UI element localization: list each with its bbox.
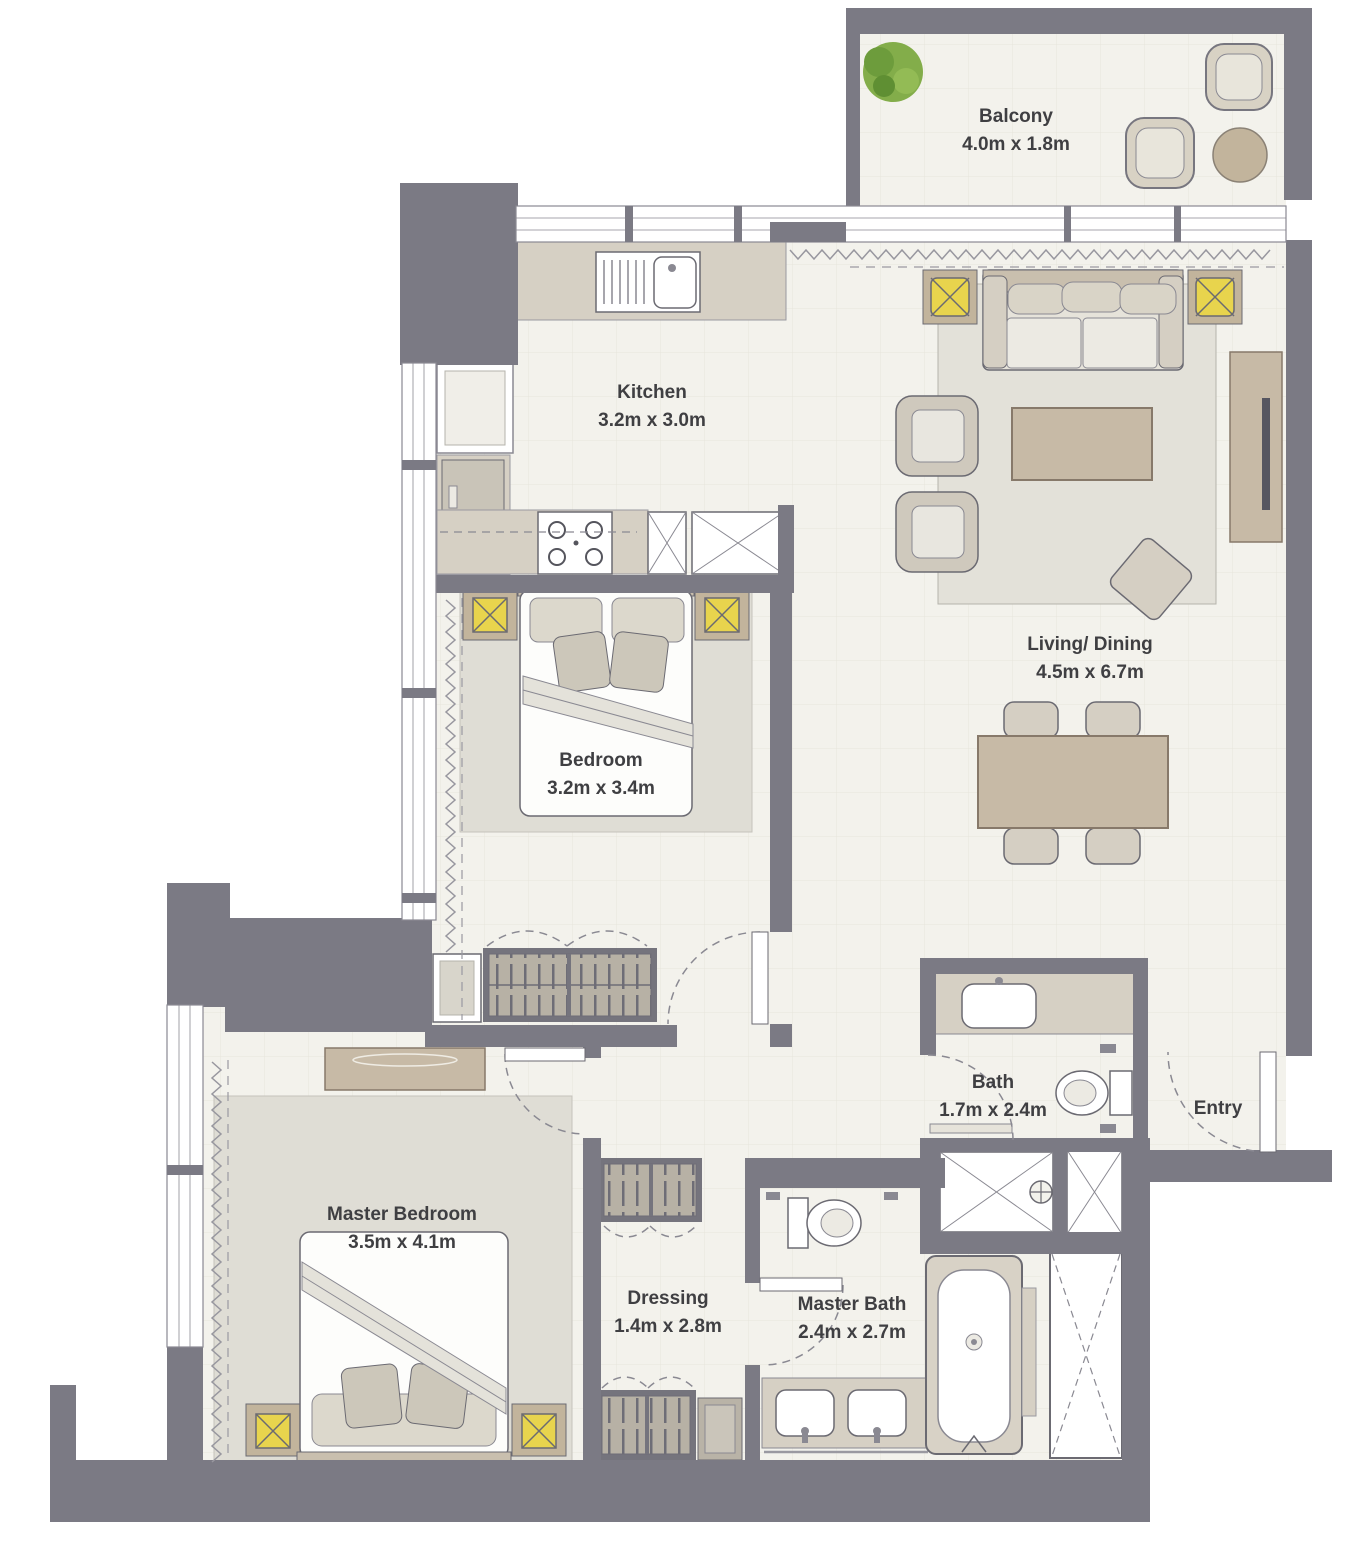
kitchen-cabinet-x	[648, 512, 686, 574]
master-toilet	[788, 1198, 861, 1248]
towel-bar	[930, 1124, 1012, 1133]
kitchen-dims: 3.2m x 3.0m	[598, 410, 706, 431]
planter-icon	[1188, 270, 1242, 324]
master-bedroom-dims: 3.5m x 4.1m	[348, 1232, 456, 1253]
bath-label: Bath	[972, 1072, 1014, 1093]
nightstand	[463, 590, 517, 640]
wall-fixture	[1100, 1044, 1116, 1053]
dressing-dims: 1.4m x 2.8m	[614, 1316, 722, 1337]
dining-table	[978, 736, 1168, 828]
dresser	[325, 1048, 485, 1090]
faucet-icon	[995, 977, 1003, 985]
entry-door-leaf	[1260, 1052, 1276, 1152]
dressing-wardrobe-top	[598, 1158, 702, 1222]
armchair	[896, 396, 978, 476]
living-dining-dims: 4.5m x 6.7m	[1036, 662, 1144, 683]
sofa	[983, 270, 1183, 370]
dressing-label: Dressing	[627, 1288, 708, 1309]
bath-dims: 1.7m x 2.4m	[939, 1100, 1047, 1121]
bedroom-dims: 3.2m x 3.4m	[547, 778, 655, 799]
bath-toilet	[1056, 1071, 1132, 1115]
kitchen-label: Kitchen	[617, 382, 687, 403]
floor-plan: Balcony 4.0m x 1.8m Kitchen 3.2m x 3.0m …	[0, 0, 1362, 1568]
nightstand	[512, 1404, 566, 1456]
entry-label: Entry	[1194, 1098, 1243, 1119]
closet-x	[1067, 1150, 1122, 1234]
master-bedroom-label: Master Bedroom	[327, 1204, 477, 1225]
fridge-door	[445, 371, 505, 445]
living-dining-label: Living/ Dining	[1027, 634, 1153, 655]
plant-icon	[863, 42, 923, 102]
top-window-band	[516, 206, 1286, 242]
bathtub	[926, 1256, 1022, 1454]
bath-sink	[962, 984, 1036, 1028]
master-bedroom-door-leaf	[505, 1048, 585, 1061]
armchair	[896, 492, 978, 572]
tv-console	[1230, 352, 1282, 542]
bedroom-wardrobe	[433, 948, 657, 1022]
stove-icon	[538, 512, 612, 574]
master-window-band	[167, 1005, 203, 1347]
master-bath-label: Master Bath	[798, 1294, 907, 1315]
shower	[940, 1152, 1053, 1232]
wall-fixture	[884, 1192, 898, 1200]
bedroom-door-leaf	[752, 932, 768, 1024]
kitchen-sink	[596, 252, 700, 312]
nightstand	[246, 1404, 300, 1456]
balcony-chair	[1206, 44, 1272, 110]
coffee-table	[1012, 408, 1152, 480]
kitchen-cabinet-x	[692, 512, 784, 574]
wall-fixture	[1100, 1124, 1116, 1133]
left-window-band	[402, 363, 436, 920]
balcony-dims: 4.0m x 1.8m	[962, 134, 1070, 155]
balcony-chair	[1126, 118, 1194, 188]
balcony-table	[1213, 128, 1267, 182]
wall-fixture	[766, 1192, 780, 1200]
master-bed	[297, 1232, 511, 1464]
bedroom-label: Bedroom	[559, 750, 642, 771]
nightstand	[695, 590, 749, 640]
tub-step	[1022, 1288, 1036, 1416]
linen-closet	[1050, 1252, 1122, 1458]
master-bath-dims: 2.4m x 2.7m	[798, 1322, 906, 1343]
planter-icon	[923, 270, 977, 324]
dressing-wardrobe-bottom	[596, 1390, 742, 1460]
tv-icon	[1262, 398, 1270, 510]
balcony-label: Balcony	[979, 106, 1053, 127]
master-bath-door-leaf	[760, 1278, 842, 1291]
master-vanity	[762, 1378, 928, 1452]
oven-handle	[449, 486, 457, 508]
